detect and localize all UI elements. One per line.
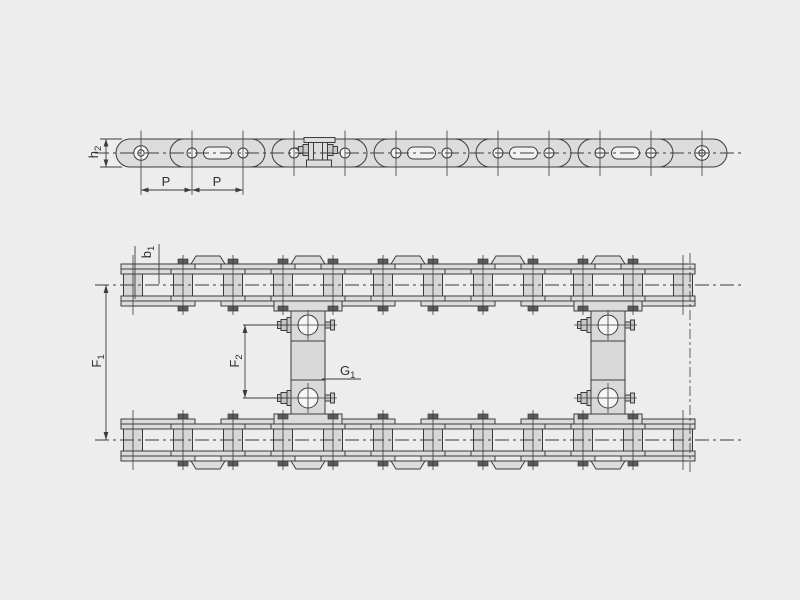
- outer-plate-bar: [421, 264, 495, 269]
- outer-plate-bar: [621, 264, 695, 269]
- inner-plate-band: [121, 424, 695, 429]
- outer-plate-bar: [121, 264, 195, 269]
- attachment-tab: [591, 461, 625, 469]
- outer-plate-bar: [221, 456, 295, 461]
- outer-plate-bar: [321, 264, 395, 269]
- inner-plate-band: [121, 296, 695, 301]
- attachment-cap: [304, 138, 335, 143]
- attachment-tab: [391, 461, 425, 469]
- outer-plate-bar: [521, 264, 595, 269]
- outer-plate-bar: [621, 456, 695, 461]
- inner-plate-band: [121, 269, 695, 274]
- outer-plate-bar: [121, 456, 195, 461]
- attachment-tab: [291, 256, 325, 264]
- attachment-tab: [191, 256, 225, 264]
- outer-plate-bar: [221, 264, 295, 269]
- bolt-tip: [333, 147, 338, 154]
- label-pitch-left: P: [162, 174, 171, 189]
- attachment-foot: [307, 160, 332, 167]
- attachment-tab: [491, 461, 525, 469]
- label-pitch-right: P: [213, 174, 222, 189]
- outer-plate-bar: [421, 419, 495, 424]
- outer-plate-bar: [121, 301, 195, 306]
- bolt-nut: [328, 145, 334, 156]
- attachment-tab: [591, 256, 625, 264]
- attachment-tab: [291, 461, 325, 469]
- attachment-tab: [391, 256, 425, 264]
- outer-plate-bar: [421, 301, 495, 306]
- outer-plate-bar: [421, 456, 495, 461]
- bolt-nut: [303, 145, 309, 156]
- attachment-tab: [491, 256, 525, 264]
- attachment-tab: [191, 461, 225, 469]
- outer-plate-bar: [121, 419, 195, 424]
- inner-plate-band: [121, 451, 695, 456]
- chain-technical-drawing: h2 P P b1 F1 F2 G1: [0, 0, 800, 600]
- outer-plate-bar: [321, 456, 395, 461]
- outer-plate-bar: [521, 456, 595, 461]
